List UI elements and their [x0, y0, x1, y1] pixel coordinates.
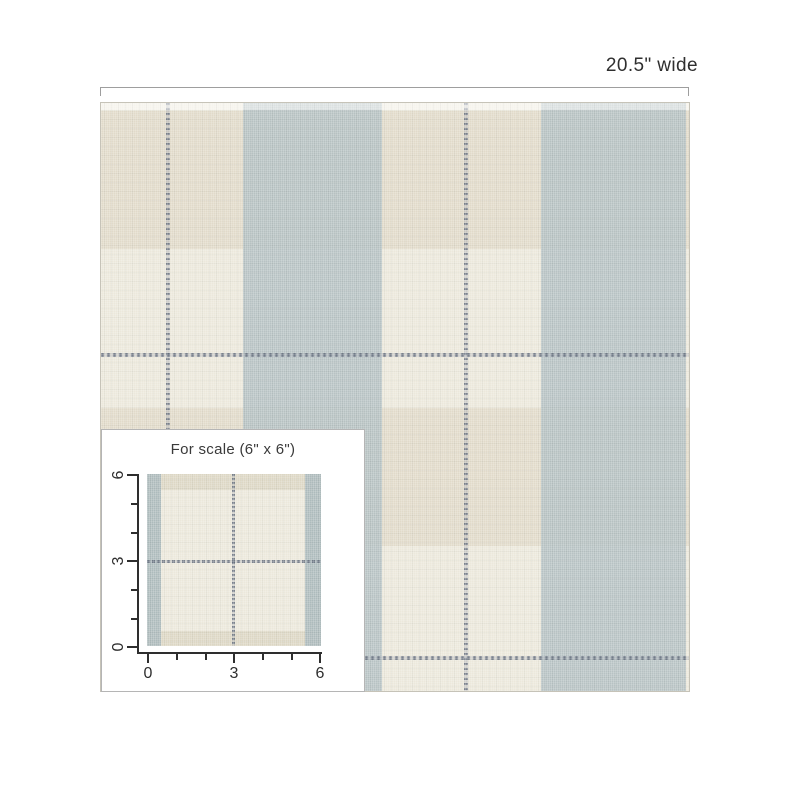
x-axis-tick	[233, 653, 235, 663]
y-axis-tick	[131, 532, 138, 534]
x-axis-tick	[319, 653, 321, 663]
width-dimension-label: 20.5" wide	[606, 55, 698, 77]
y-axis-tick	[131, 503, 138, 505]
mini-swatch-sample	[147, 474, 321, 646]
scale-x-axis	[137, 652, 322, 654]
width-dimension-bracket	[100, 87, 689, 96]
y-axis-tick	[131, 589, 138, 591]
scale-inset-title: For scale (6" x 6")	[102, 441, 364, 458]
x-axis-tick	[291, 653, 293, 660]
mini-linen-texture-overlay	[147, 474, 321, 646]
product-swatch-image: 20.5" wide For scale (6" x 6")	[0, 0, 794, 794]
scale-inset-panel: For scale (6" x 6") 6 3 0 0	[101, 429, 365, 692]
x-axis-tick	[262, 653, 264, 660]
y-axis-tick-label: 0	[109, 637, 129, 657]
scale-y-axis	[137, 474, 139, 654]
y-axis-tick-label: 6	[109, 465, 129, 485]
x-axis-tick	[147, 653, 149, 663]
x-axis-tick	[205, 653, 207, 660]
x-axis-tick-label: 3	[224, 664, 244, 684]
x-axis-tick-label: 0	[138, 664, 158, 684]
x-axis-tick-label: 6	[310, 664, 330, 684]
y-axis-tick-label: 3	[109, 551, 129, 571]
x-axis-tick	[176, 653, 178, 660]
y-axis-tick	[131, 618, 138, 620]
